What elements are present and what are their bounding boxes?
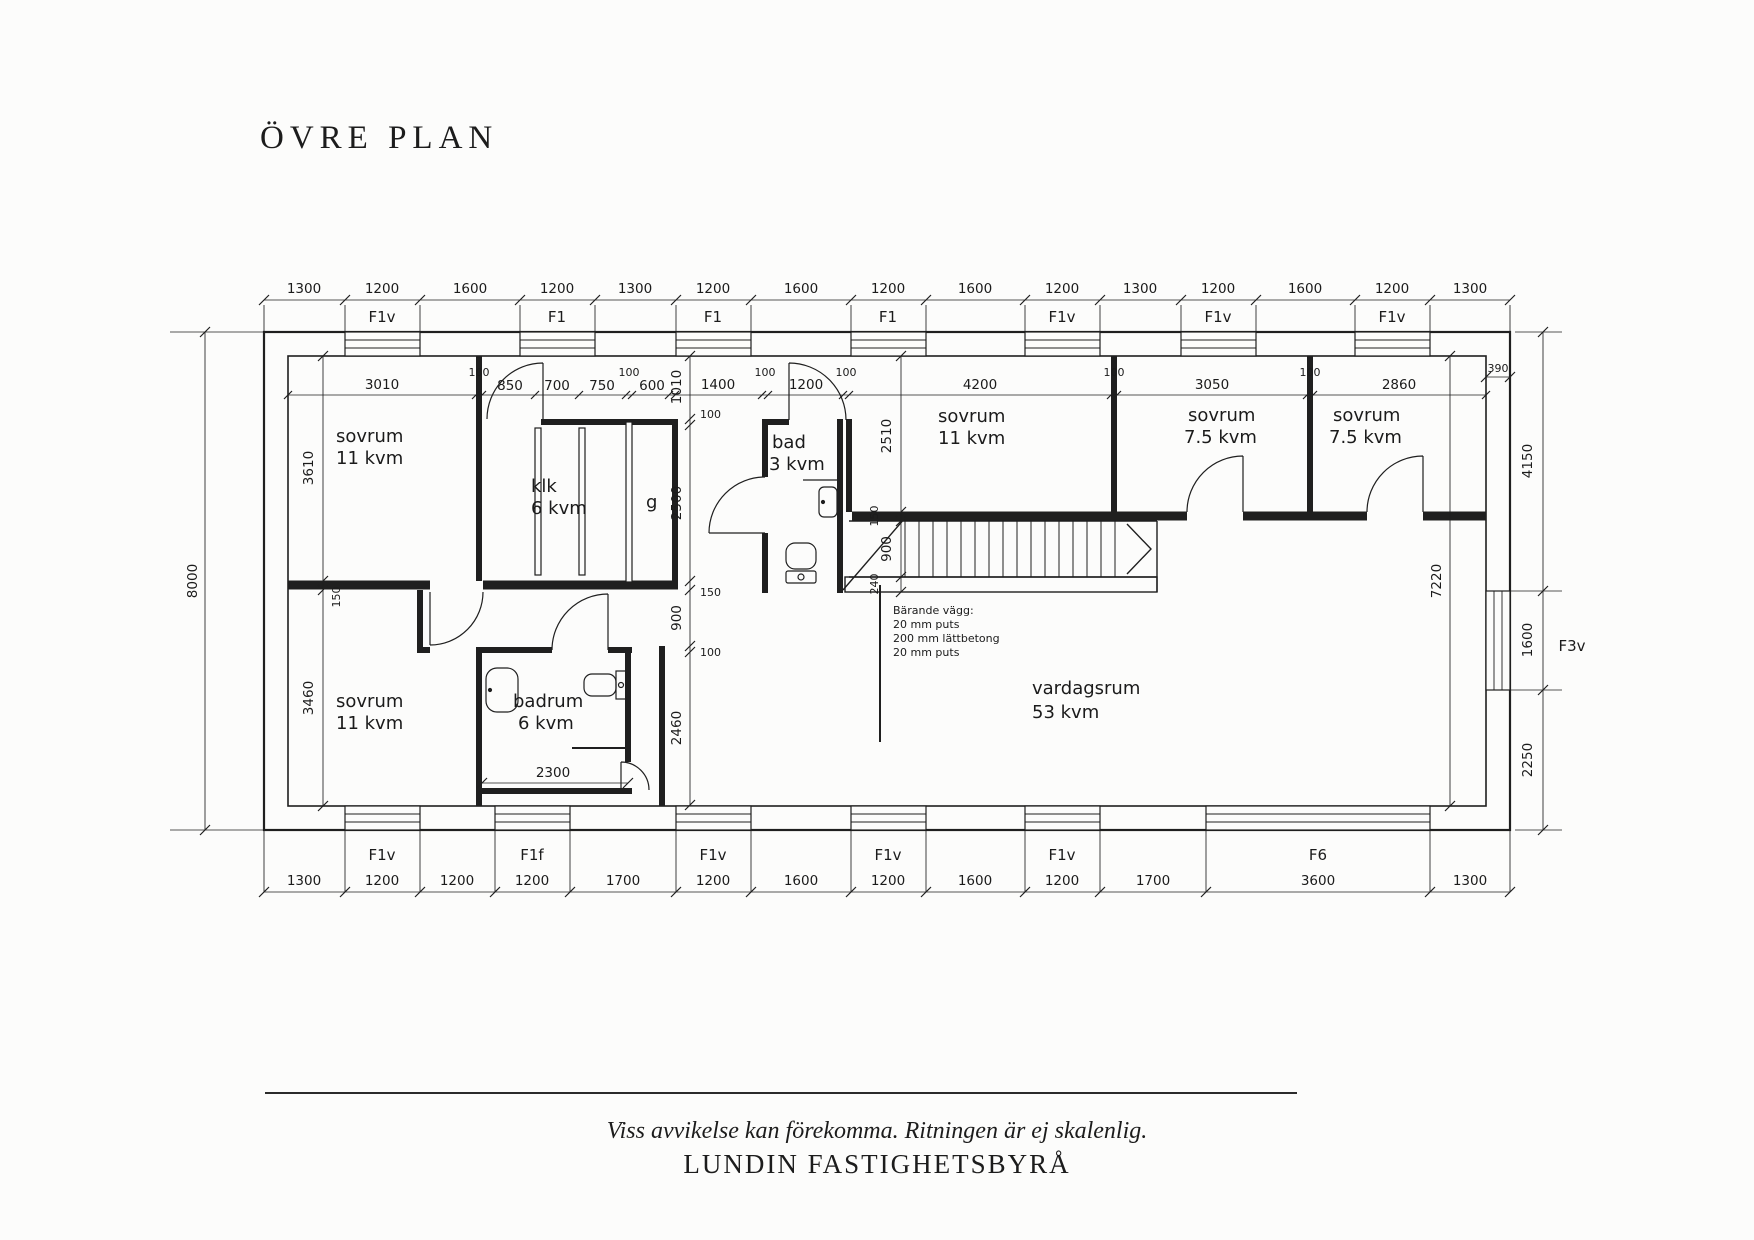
bearing-wall-annotation: Bärande vägg: 20 mm puts 200 mm lättbeto… bbox=[893, 604, 1000, 659]
window-label: F1v bbox=[368, 846, 395, 864]
window-f1v-icon bbox=[851, 806, 926, 830]
dim-label: 1200 bbox=[1201, 281, 1235, 297]
window-f1v-icon bbox=[1181, 332, 1256, 356]
bottom-dimensions: 1300 1200 1200 1200 1700 1200 1600 1200 … bbox=[287, 846, 1487, 889]
room-name: sovrum bbox=[1333, 405, 1400, 426]
dim-label: 1400 bbox=[701, 377, 735, 393]
bearing-wall bbox=[845, 577, 1157, 592]
dim-label: 150 bbox=[868, 506, 881, 527]
windows-top bbox=[345, 332, 1430, 356]
door-bad bbox=[709, 477, 765, 533]
stair-treads bbox=[905, 521, 1115, 577]
dim-label: 100 bbox=[836, 366, 857, 379]
window-f1v-icon bbox=[1025, 806, 1100, 830]
floorplan-page: ÖVRE PLAN bbox=[0, 0, 1754, 1240]
window-label: F1v bbox=[1378, 308, 1405, 326]
dim-label: 1200 bbox=[871, 873, 905, 889]
door-sovrum-75-1 bbox=[1187, 456, 1243, 512]
window-label: F1v bbox=[874, 846, 901, 864]
dim-label: 1200 bbox=[1375, 281, 1409, 297]
window-label: F1v bbox=[368, 308, 395, 326]
window-label: F1 bbox=[879, 308, 897, 326]
dim-label: 900 bbox=[879, 536, 895, 562]
dim-label: 1600 bbox=[453, 281, 487, 297]
dim-label: 2460 bbox=[669, 711, 685, 745]
dim-label: 100 bbox=[755, 366, 776, 379]
dim-label: 1700 bbox=[606, 873, 640, 889]
dim-label: 390 bbox=[1488, 362, 1509, 375]
annotation-line: 20 mm puts bbox=[893, 646, 960, 659]
room-area: 11 kvm bbox=[336, 448, 403, 469]
dim-label: 900 bbox=[669, 605, 685, 631]
dim-label: 700 bbox=[544, 378, 570, 394]
annotation-line: 200 mm lättbetong bbox=[893, 632, 1000, 645]
floorplan-drawing: 1300 1200 1600 1200 1300 1200 1600 1200 … bbox=[0, 0, 1754, 1240]
window-f1v-icon bbox=[1355, 332, 1430, 356]
room-area: 3 kvm bbox=[769, 454, 825, 475]
interior-top-dimensions: 3010 100 850 700 750 100 600 1400 100 12… bbox=[365, 362, 1509, 394]
dim-label: 240 bbox=[868, 574, 881, 595]
dim-label: 150 bbox=[330, 587, 343, 608]
dim-label: 850 bbox=[497, 378, 523, 394]
window-label: F3v bbox=[1558, 637, 1585, 655]
dim-label: 1200 bbox=[696, 281, 730, 297]
dim-label: 1700 bbox=[1136, 873, 1170, 889]
window-label: F1v bbox=[1048, 846, 1075, 864]
dim-label: 7220 bbox=[1429, 564, 1445, 598]
windows-bottom bbox=[345, 806, 1430, 830]
window-f1v-icon bbox=[1025, 332, 1100, 356]
dim-label: 100 bbox=[469, 366, 490, 379]
window-label: F1 bbox=[704, 308, 722, 326]
dim-label: 100 bbox=[1300, 366, 1321, 379]
dim-label: 1200 bbox=[696, 873, 730, 889]
dim-label: 3010 bbox=[365, 377, 399, 393]
dim-label: 1200 bbox=[871, 281, 905, 297]
dim-label: 3050 bbox=[1195, 377, 1229, 393]
dim-label: 1200 bbox=[365, 281, 399, 297]
dim-label: 1200 bbox=[1045, 873, 1079, 889]
dim-label: 150 bbox=[700, 586, 721, 599]
window-label: F6 bbox=[1309, 846, 1327, 864]
bad-toilet-icon bbox=[786, 543, 816, 569]
dim-label: 2500 bbox=[669, 486, 685, 520]
room-area: 7.5 kvm bbox=[1184, 427, 1257, 448]
door-sovrum-75-2 bbox=[1367, 456, 1423, 512]
dim-label: 1600 bbox=[1288, 281, 1322, 297]
room-name: klk bbox=[531, 476, 557, 497]
window-f1v-icon bbox=[345, 332, 420, 356]
window-label: F1v bbox=[1204, 308, 1231, 326]
dim-label: 1200 bbox=[365, 873, 399, 889]
window-label: F1v bbox=[699, 846, 726, 864]
dim-label: 2860 bbox=[1382, 377, 1416, 393]
dim-label: 750 bbox=[589, 378, 615, 394]
footer: Viss avvikelse kan förekomma. Ritningen … bbox=[0, 1118, 1754, 1180]
dim-label: 1600 bbox=[1520, 623, 1536, 657]
dim-label: 1200 bbox=[789, 377, 823, 393]
room-name: vardagsrum bbox=[1032, 678, 1140, 699]
dim-label: 100 bbox=[700, 646, 721, 659]
room-name: sovrum bbox=[1188, 405, 1255, 426]
window-label: F1v bbox=[1048, 308, 1075, 326]
top-dimensions: 1300 1200 1600 1200 1300 1200 1600 1200 … bbox=[287, 281, 1487, 326]
footer-agency-name: LUNDIN FASTIGHETSBYRÅ bbox=[0, 1149, 1754, 1180]
room-name: sovrum bbox=[336, 426, 403, 447]
dim-label: 1600 bbox=[958, 873, 992, 889]
room-area: 6 kvm bbox=[531, 498, 587, 519]
window-f1v-icon bbox=[345, 806, 420, 830]
footer-divider bbox=[265, 1092, 1297, 1094]
room-name: bad bbox=[772, 432, 806, 453]
room-area: 6 kvm bbox=[518, 713, 574, 734]
room-area: 11 kvm bbox=[938, 428, 1005, 449]
dim-label: 1300 bbox=[287, 281, 321, 297]
window-f6-icon bbox=[1206, 806, 1430, 830]
door-sovrum-topleft bbox=[430, 592, 483, 645]
dim-label: 100 bbox=[619, 366, 640, 379]
room-name: sovrum bbox=[336, 691, 403, 712]
dim-label: 1600 bbox=[958, 281, 992, 297]
dim-label: 1200 bbox=[515, 873, 549, 889]
dim-label: 1200 bbox=[1045, 281, 1079, 297]
room-labels: sovrum 11 kvm klk 6 kvm g bad 3 kvm sovr… bbox=[336, 405, 1402, 734]
dim-label: 1200 bbox=[540, 281, 574, 297]
dim-label: 2250 bbox=[1520, 743, 1536, 777]
room-name: g bbox=[646, 492, 657, 513]
footer-disclaimer: Viss avvikelse kan förekomma. Ritningen … bbox=[0, 1118, 1754, 1145]
dim-label: 1600 bbox=[784, 281, 818, 297]
window-f3v-icon bbox=[1486, 591, 1510, 690]
room-name: badrum bbox=[513, 691, 583, 712]
window-f1v-icon bbox=[676, 806, 751, 830]
window-f1-icon bbox=[520, 332, 595, 356]
room-area: 11 kvm bbox=[336, 713, 403, 734]
window-f1-icon bbox=[676, 332, 751, 356]
dim-label: 3460 bbox=[301, 681, 317, 715]
dim-label: 8000 bbox=[185, 564, 201, 598]
stair-direction-arrow-icon bbox=[1127, 524, 1151, 574]
room-area: 7.5 kvm bbox=[1329, 427, 1402, 448]
window-label: F1 bbox=[548, 308, 566, 326]
dim-label: 600 bbox=[639, 378, 665, 394]
dim-label: 3610 bbox=[301, 451, 317, 485]
dim-label: 1010 bbox=[669, 370, 685, 404]
dim-label: 1300 bbox=[287, 873, 321, 889]
room-area: 53 kvm bbox=[1032, 702, 1099, 723]
dim-label: 3600 bbox=[1301, 873, 1335, 889]
dim-label: 2510 bbox=[879, 419, 895, 453]
window-f1f-icon bbox=[495, 806, 570, 830]
badrum-toilet-icon bbox=[584, 674, 616, 696]
dim-label: 4200 bbox=[963, 377, 997, 393]
room-name: sovrum bbox=[938, 406, 1005, 427]
annotation-line: 20 mm puts bbox=[893, 618, 960, 631]
dim-label: 1300 bbox=[618, 281, 652, 297]
dim-label: 1200 bbox=[440, 873, 474, 889]
dim-label: 4150 bbox=[1520, 444, 1536, 478]
window-f1-icon bbox=[851, 332, 926, 356]
annotation-line: Bärande vägg: bbox=[893, 604, 974, 617]
dim-label: 1300 bbox=[1453, 873, 1487, 889]
dim-label: 1300 bbox=[1453, 281, 1487, 297]
dim-label: 1600 bbox=[784, 873, 818, 889]
dim-label: 100 bbox=[1104, 366, 1125, 379]
dim-label: 1300 bbox=[1123, 281, 1157, 297]
door-badrum bbox=[552, 594, 608, 650]
window-label: F1f bbox=[520, 846, 544, 864]
dim-label: 100 bbox=[700, 408, 721, 421]
dim-label: 2300 bbox=[536, 765, 570, 781]
